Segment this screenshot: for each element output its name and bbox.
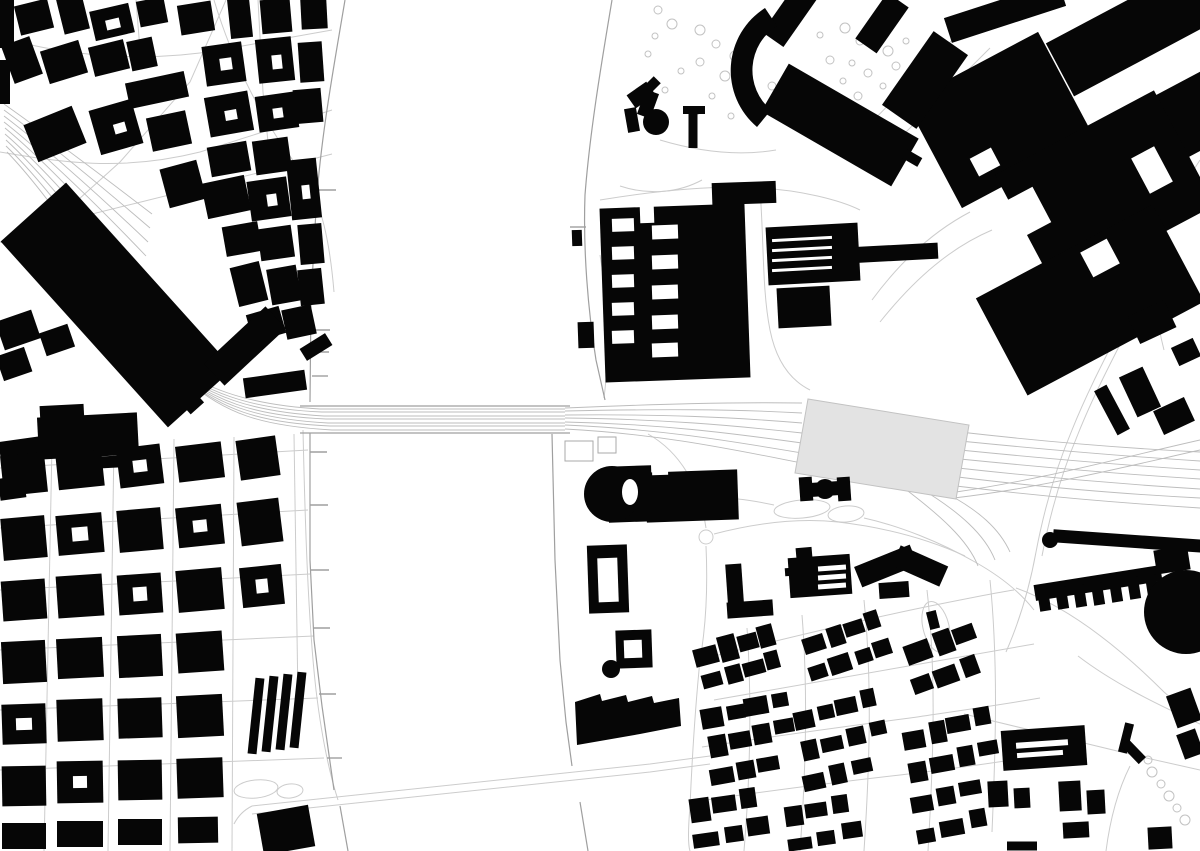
building-footprint bbox=[1007, 842, 1037, 851]
courtyard bbox=[652, 285, 678, 300]
building-footprint bbox=[578, 322, 595, 349]
building-footprint bbox=[176, 757, 223, 799]
building-footprint bbox=[266, 265, 302, 306]
courtyard bbox=[224, 109, 238, 121]
building-footprint bbox=[293, 88, 324, 124]
building-footprint bbox=[40, 404, 85, 424]
building-footprint bbox=[297, 223, 324, 265]
building-footprint bbox=[973, 706, 992, 727]
courtyard-oval bbox=[622, 479, 638, 505]
courtyard bbox=[652, 343, 678, 358]
building-footprint bbox=[297, 268, 325, 306]
courtyard bbox=[301, 185, 310, 200]
building-footprint bbox=[177, 1, 215, 36]
courtyard bbox=[624, 640, 643, 659]
courtyard bbox=[612, 330, 634, 344]
courtyard bbox=[132, 459, 147, 473]
building-footprint bbox=[699, 706, 724, 730]
building-footprint-round bbox=[643, 109, 669, 135]
building-footprint bbox=[831, 794, 849, 814]
building-footprint bbox=[845, 725, 866, 746]
building-footprint bbox=[689, 112, 698, 148]
courtyard bbox=[133, 587, 148, 602]
building-footprint-round bbox=[1042, 532, 1058, 548]
courtyard bbox=[597, 558, 619, 603]
building-footprint bbox=[1013, 788, 1030, 809]
courtyard bbox=[266, 193, 278, 206]
building-footprint bbox=[0, 452, 48, 496]
building-footprint bbox=[1063, 821, 1090, 838]
building-footprint bbox=[739, 787, 758, 809]
building-footprint bbox=[118, 760, 163, 801]
courtyard bbox=[16, 718, 32, 731]
outlined-building bbox=[598, 437, 616, 453]
building-footprint bbox=[300, 0, 328, 30]
building-footprint bbox=[746, 816, 770, 837]
building-footprint bbox=[56, 637, 104, 679]
courtyard bbox=[612, 274, 634, 288]
building-footprint bbox=[712, 181, 777, 205]
building-footprint bbox=[175, 567, 224, 613]
building-footprint bbox=[878, 581, 909, 599]
building-footprint bbox=[236, 498, 283, 547]
building-footprint bbox=[2, 823, 46, 849]
courtyard bbox=[272, 107, 283, 118]
building-footprint bbox=[252, 137, 292, 176]
building-footprint bbox=[235, 435, 280, 480]
building-footprint bbox=[175, 441, 225, 482]
courtyard bbox=[652, 465, 668, 476]
courtyard bbox=[652, 225, 678, 240]
building-footprint bbox=[707, 734, 729, 759]
building-footprint bbox=[2, 766, 47, 807]
building-footprint bbox=[969, 808, 988, 829]
building-footprint bbox=[1001, 725, 1088, 771]
building-footprint bbox=[572, 230, 583, 246]
building-footprint bbox=[771, 692, 789, 709]
building-footprint bbox=[118, 819, 162, 845]
courtyard bbox=[640, 205, 655, 223]
building-footprint bbox=[222, 221, 263, 257]
building-footprint-round bbox=[602, 660, 620, 678]
courtyard bbox=[219, 57, 233, 71]
building-footprint bbox=[176, 694, 224, 738]
courtyard bbox=[652, 315, 678, 330]
building-footprint bbox=[55, 450, 105, 491]
building-footprint bbox=[281, 304, 317, 340]
building-footprint bbox=[227, 0, 253, 39]
building-footprint bbox=[724, 825, 744, 843]
building-footprint bbox=[987, 780, 1008, 807]
courtyard bbox=[612, 246, 634, 260]
building-footprint bbox=[683, 106, 705, 114]
building-footprint bbox=[1058, 780, 1082, 811]
building-footprint bbox=[816, 830, 836, 846]
building-footprint bbox=[902, 729, 927, 751]
building-footprint bbox=[785, 568, 794, 577]
building-footprint bbox=[726, 599, 773, 618]
building-footprint-round bbox=[815, 479, 835, 499]
building-footprint bbox=[257, 225, 295, 261]
building-footprint bbox=[0, 0, 14, 48]
building-footprint bbox=[907, 761, 928, 784]
courtyard bbox=[612, 218, 634, 232]
building-footprint bbox=[736, 760, 757, 781]
building-footprint bbox=[766, 223, 861, 286]
building-footprint bbox=[956, 745, 975, 767]
building-footprint bbox=[1, 640, 47, 684]
building-footprint bbox=[645, 469, 739, 522]
building-footprint bbox=[56, 698, 103, 742]
figure-ground-map[interactable] bbox=[0, 0, 1200, 851]
building-footprint bbox=[1086, 790, 1105, 815]
building-footprint bbox=[57, 821, 103, 847]
building-footprint bbox=[0, 515, 47, 561]
building-footprint bbox=[117, 697, 162, 739]
building-footprint bbox=[116, 507, 163, 553]
building-footprint bbox=[776, 286, 831, 329]
building-footprint bbox=[784, 805, 805, 827]
courtyard bbox=[652, 255, 678, 270]
building-footprint bbox=[936, 786, 957, 807]
courtyard bbox=[255, 578, 268, 593]
building-footprint bbox=[841, 821, 863, 840]
building-footprint bbox=[751, 723, 772, 746]
building-footprint bbox=[688, 797, 711, 824]
building-footprint bbox=[178, 817, 218, 844]
courtyard bbox=[73, 776, 87, 788]
building-footprint bbox=[298, 41, 325, 83]
courtyard bbox=[71, 526, 88, 541]
building-footprint bbox=[176, 630, 225, 673]
courtyard bbox=[271, 55, 282, 70]
building-footprint bbox=[117, 634, 163, 678]
courtyard bbox=[192, 519, 207, 532]
building-footprint bbox=[260, 0, 293, 34]
building-footprint bbox=[711, 794, 737, 813]
building-footprint bbox=[56, 573, 105, 618]
outlined-building bbox=[565, 441, 593, 461]
building-footprint bbox=[1147, 826, 1172, 849]
city-map-canvas[interactable] bbox=[0, 0, 1200, 851]
courtyard bbox=[612, 302, 634, 316]
building-footprint bbox=[1, 579, 48, 622]
